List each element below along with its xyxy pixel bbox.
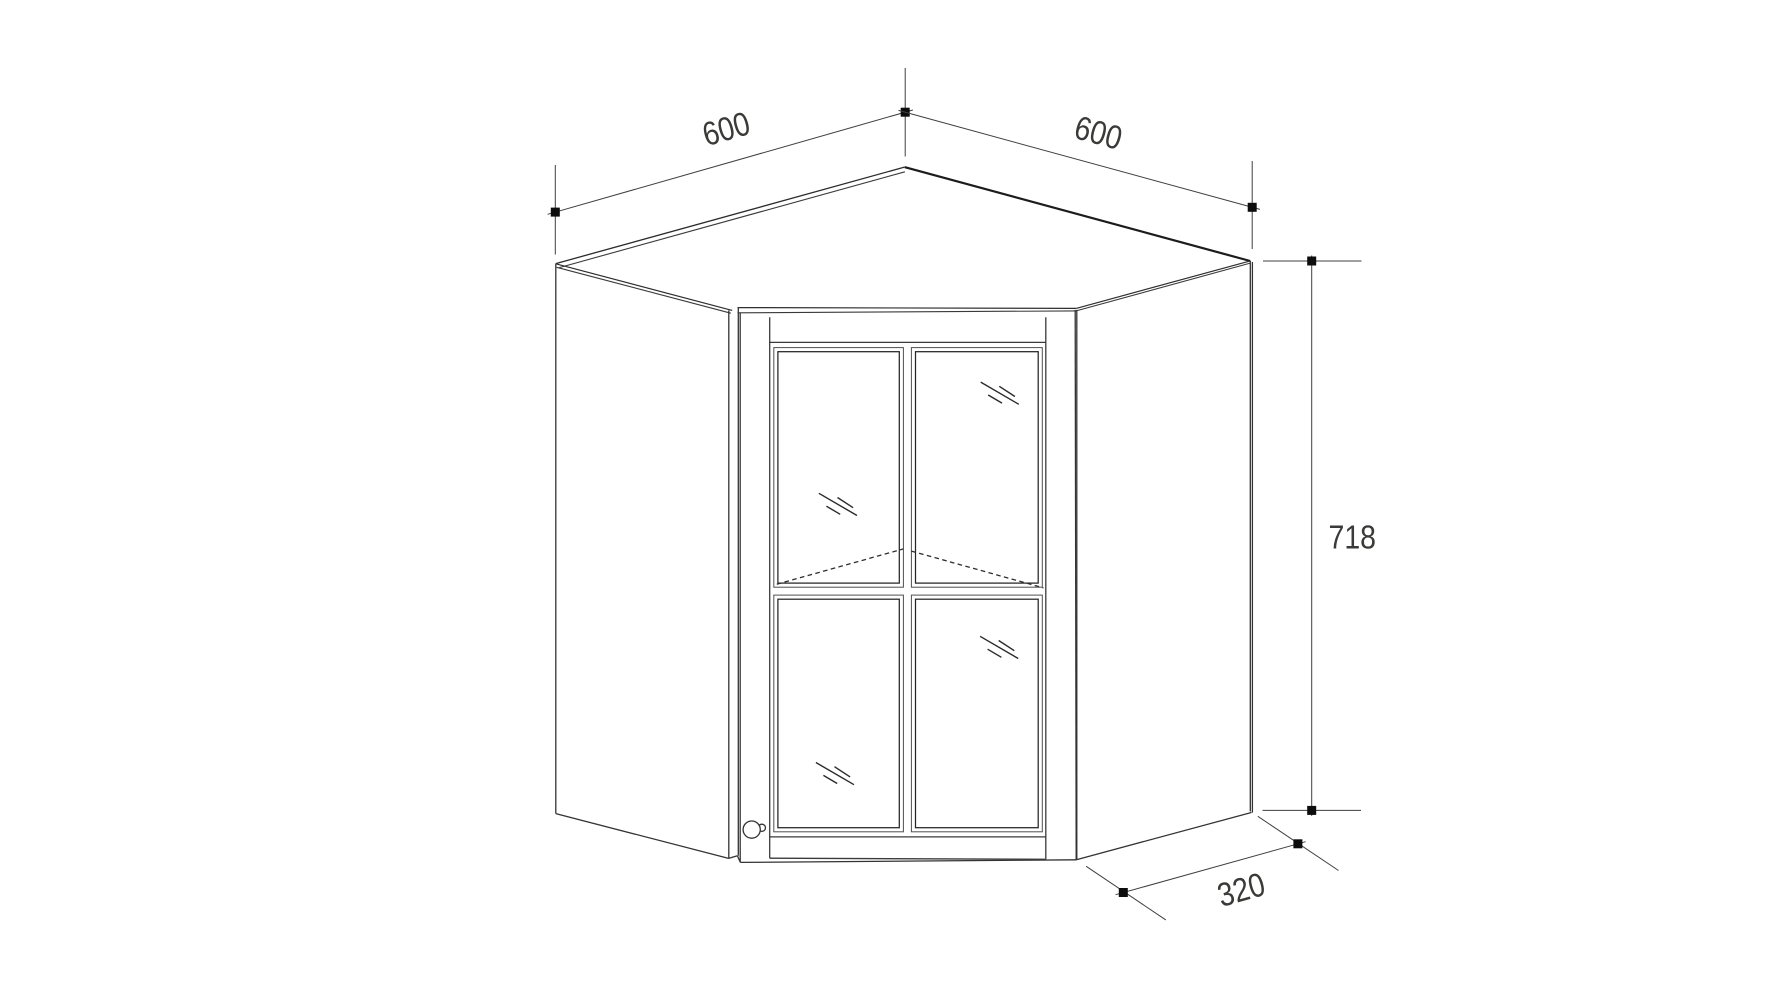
svg-text:718: 718 bbox=[1329, 519, 1377, 556]
